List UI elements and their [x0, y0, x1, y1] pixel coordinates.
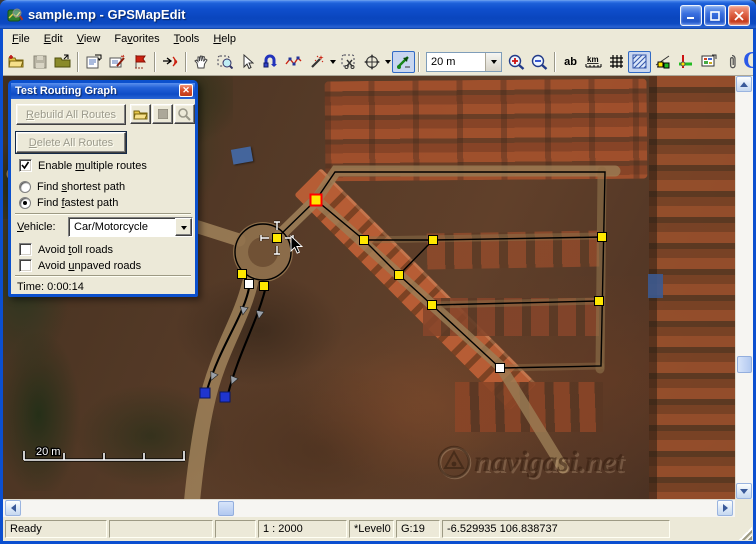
scroll-right-button[interactable]: [717, 500, 733, 516]
map-properties-button[interactable]: [82, 51, 105, 73]
open-map-button[interactable]: [5, 51, 28, 73]
avoid-unpaved-checkbox[interactable]: [19, 259, 32, 272]
window-title: sample.mp - GPSMapEdit: [28, 7, 185, 22]
menu-help[interactable]: Help: [206, 31, 243, 47]
grid-icon: [609, 54, 624, 69]
zoom-select-button[interactable]: [213, 51, 236, 73]
scrollbar-corner: [735, 499, 753, 517]
arrow-down-icon: [740, 489, 748, 498]
watermark: navigasi.net navigasi.net: [439, 445, 627, 480]
zoom-scale-combo[interactable]: 20 m: [426, 52, 502, 72]
find-shortest-path-label: Find shortest path: [37, 181, 125, 193]
zoom-in-icon: [508, 54, 525, 70]
arrow-right-icon: [723, 504, 732, 512]
menu-bar: File Edit View Favorites Tools Help: [3, 29, 753, 48]
hatch-fill-toggle-button[interactable]: [628, 51, 651, 73]
trim-route-icon: [396, 54, 411, 69]
ruler-km-icon: km: [585, 54, 602, 69]
close-button[interactable]: [728, 5, 750, 26]
arrow-up-icon: [740, 78, 748, 87]
dialog-close-button[interactable]: ✕: [179, 84, 193, 97]
status-map-scale: 1 : 2000: [258, 520, 347, 538]
scale-label: 20 m: [36, 446, 60, 458]
open-map-icon: [8, 54, 25, 69]
save-button[interactable]: [28, 51, 51, 73]
avoid-toll-label: Avoid toll roads: [38, 244, 113, 256]
vehicle-combo[interactable]: Car/Motorcycle: [68, 217, 193, 237]
polyline-button[interactable]: [282, 51, 305, 73]
zoom-out-icon: [531, 54, 548, 70]
cut-selection-button[interactable]: [337, 51, 360, 73]
route-nodes-toggle-button[interactable]: [651, 51, 674, 73]
toolbar-separator: [554, 52, 556, 72]
menu-favorites[interactable]: Favorites: [107, 31, 166, 47]
routing-graph: [200, 172, 607, 402]
save-icon: [33, 55, 47, 69]
routing-time: Time: 0:00:14: [17, 281, 84, 293]
uturn-button[interactable]: [259, 51, 282, 73]
separator: [15, 275, 191, 277]
attach-icon: [727, 54, 737, 70]
find-shortest-path-radio[interactable]: [19, 181, 31, 193]
status-message: Ready: [5, 520, 107, 538]
enable-multiple-routes-checkbox[interactable]: [19, 159, 32, 172]
toolbar-separator: [154, 52, 156, 72]
toolbar-separator: [418, 52, 420, 72]
minimize-icon: [686, 11, 696, 20]
dialog-stop-button[interactable]: [152, 104, 173, 124]
status-level: *Level0: [349, 520, 394, 538]
pan-hand-button[interactable]: [190, 51, 213, 73]
menu-edit[interactable]: Edit: [37, 31, 70, 47]
separator: [15, 213, 191, 215]
toolbar: 20 m ab km G: [3, 48, 753, 76]
route-node-yellow[interactable]: [429, 236, 438, 245]
edit-objects-button[interactable]: [105, 51, 128, 73]
polyline-icon: [285, 55, 302, 68]
flag-icon: [133, 54, 147, 69]
avoid-unpaved-label: Avoid unpaved roads: [38, 260, 141, 272]
find-fastest-path-radio[interactable]: [19, 197, 31, 209]
delete-all-routes-button[interactable]: Delete All Routes: [16, 132, 126, 153]
menu-file[interactable]: File: [5, 31, 37, 47]
zoom-in-button[interactable]: [505, 51, 528, 73]
route-node-yellow[interactable]: [598, 233, 607, 242]
routing-waves-icon: [162, 54, 179, 69]
vertical-scrollbar[interactable]: [735, 76, 753, 499]
avoid-toll-row: Avoid toll roads: [19, 243, 113, 256]
move-objects-button[interactable]: [360, 51, 383, 73]
find-fastest-path-label: Find fastest path: [37, 197, 118, 209]
close-icon: [734, 11, 744, 21]
route-node-yellow[interactable]: [428, 301, 437, 310]
scroll-up-button[interactable]: [736, 76, 752, 92]
app-icon: [7, 7, 23, 23]
open-folder-button[interactable]: [51, 51, 74, 73]
hatch-fill-icon: [632, 54, 647, 69]
route-node-yellow[interactable]: [273, 234, 282, 243]
maximize-button[interactable]: [704, 5, 726, 26]
title-bar[interactable]: sample.mp - GPSMapEdit: [0, 0, 756, 29]
application-window: sample.mp - GPSMapEdit File Edit View Fa…: [0, 0, 756, 544]
enable-multiple-routes-row: Enable multiple routes: [19, 159, 147, 172]
status-grid: G:19: [396, 520, 440, 538]
menu-view[interactable]: View: [70, 31, 108, 47]
status-pane-2: [109, 520, 213, 538]
attachments-button[interactable]: [720, 51, 743, 73]
zoom-select-icon: [217, 54, 233, 69]
test-routing-tool-button[interactable]: [392, 51, 415, 73]
zoom-scale-value: 20 m: [427, 53, 485, 71]
routing-waves-button[interactable]: [159, 51, 182, 73]
move-objects-icon: [364, 54, 380, 70]
grid-toggle-button[interactable]: [605, 51, 628, 73]
route-node-white[interactable]: [245, 280, 254, 289]
route-node-selected[interactable]: [311, 195, 322, 206]
dialog-open-button[interactable]: [130, 104, 151, 124]
magic-wand-button[interactable]: [305, 51, 328, 73]
logo-g-icon: G: [743, 50, 753, 74]
junctions-icon: [678, 54, 693, 69]
resize-grip[interactable]: [739, 527, 752, 540]
vehicle-label: Vehicle:: [17, 221, 56, 233]
junctions-toggle-button[interactable]: [674, 51, 697, 73]
route-node-yellow[interactable]: [595, 297, 604, 306]
open-folder-icon: [54, 54, 71, 69]
arrow-left-icon: [7, 504, 16, 512]
test-routing-graph-dialog: Test Routing Graph ✕ Rebuild All Routes …: [8, 80, 198, 297]
dialog-zoom-button[interactable]: [174, 104, 195, 124]
horizontal-scrollbar[interactable]: [3, 499, 735, 517]
menu-tools[interactable]: Tools: [167, 31, 207, 47]
vertical-scroll-thumb[interactable]: [737, 356, 752, 373]
select-arrow-icon: [242, 54, 254, 69]
vehicle-value: Car/Motorcycle: [69, 218, 175, 236]
edit-objects-icon: [109, 54, 125, 69]
select-arrow-button[interactable]: [236, 51, 259, 73]
svg-text:km: km: [587, 55, 599, 64]
client-area: File Edit View Favorites Tools Help: [3, 29, 753, 541]
dialog-title-bar[interactable]: Test Routing Graph: [11, 83, 195, 99]
zoom-out-button[interactable]: [528, 51, 551, 73]
open-folder-icon: [133, 108, 148, 120]
vehicle-combo-arrow[interactable]: [175, 218, 192, 236]
toolbar-separator: [185, 52, 187, 72]
scroll-down-button[interactable]: [736, 483, 752, 499]
labels-ab-icon: ab: [564, 56, 577, 68]
uturn-icon: [263, 54, 279, 69]
horizontal-scroll-thumb[interactable]: [218, 501, 234, 516]
scroll-left-button[interactable]: [5, 500, 21, 516]
cut-selection-icon: [341, 54, 357, 69]
route-node-yellow[interactable]: [238, 270, 247, 279]
labels-toggle-button[interactable]: ab: [559, 51, 582, 73]
route-node-blue[interactable]: [220, 392, 230, 402]
toolbar-separator: [77, 52, 79, 72]
magic-wand-icon: [309, 54, 324, 69]
find-shortest-path-row: Find shortest path: [19, 181, 125, 193]
status-bar: Ready 1 : 2000 *Level0 G:19 -6.529935 10…: [3, 517, 753, 541]
raster-toggle-button[interactable]: [697, 51, 720, 73]
dialog-body: Rebuild All Routes Delete All Routes Ena…: [11, 99, 195, 294]
status-coordinates: -6.529935 106.838737: [442, 520, 670, 538]
check-icon: [21, 161, 30, 170]
stop-icon: [158, 109, 168, 119]
route-node-yellow[interactable]: [395, 271, 404, 280]
magic-wand-dropdown[interactable]: [328, 51, 337, 73]
enable-multiple-routes-label: Enable multiple routes: [38, 160, 147, 172]
ruler-button[interactable]: km: [582, 51, 605, 73]
find-fastest-path-row: Find fastest path: [19, 197, 118, 209]
pan-hand-icon: [194, 54, 209, 69]
route-nodes-icon: [655, 54, 671, 69]
zoom-scale-combo-arrow[interactable]: [485, 53, 501, 71]
move-objects-dropdown[interactable]: [383, 51, 392, 73]
route-node-yellow[interactable]: [360, 236, 369, 245]
rebuild-all-routes-button[interactable]: Rebuild All Routes: [16, 104, 126, 125]
maximize-icon: [710, 11, 720, 21]
dialog-title: Test Routing Graph: [15, 85, 117, 97]
raster-icon: [701, 54, 717, 69]
status-pane-3: [215, 520, 256, 538]
avoid-unpaved-row: Avoid unpaved roads: [19, 259, 141, 272]
minimize-button[interactable]: [680, 5, 702, 26]
flag-button[interactable]: [128, 51, 151, 73]
route-node-blue[interactable]: [200, 388, 210, 398]
magnifier-icon: [178, 108, 191, 121]
map-scale-bar: 20 m: [24, 446, 185, 460]
map-properties-icon: [86, 54, 102, 69]
route-node-white[interactable]: [496, 364, 505, 373]
watermark-text: navigasi.net: [474, 445, 625, 478]
avoid-toll-checkbox[interactable]: [19, 243, 32, 256]
route-node-yellow[interactable]: [260, 282, 269, 291]
